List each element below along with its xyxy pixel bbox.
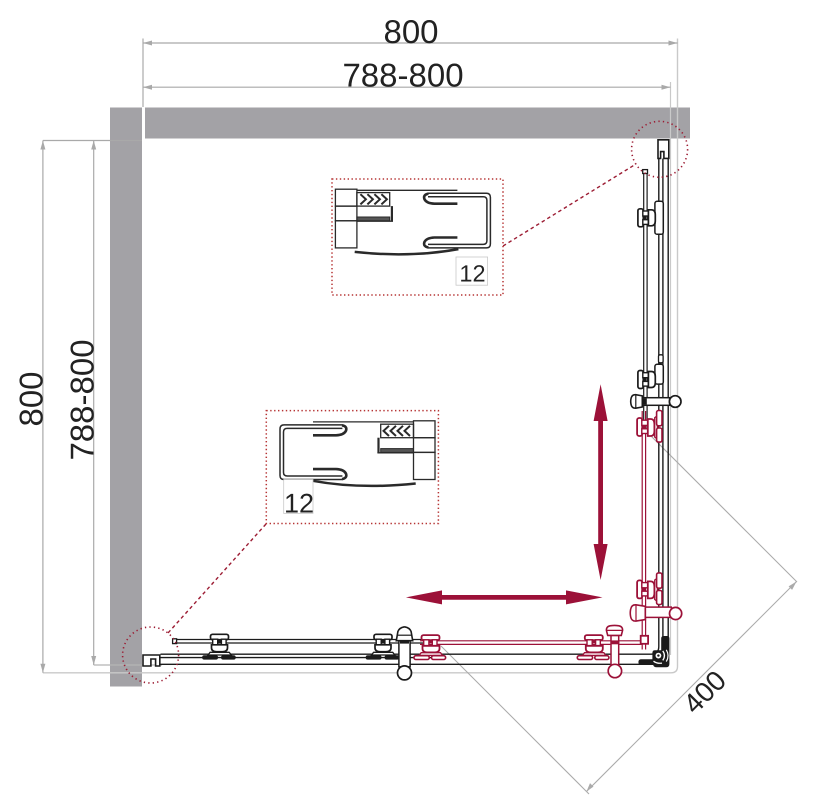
- svg-text:800: 800: [13, 371, 50, 426]
- svg-text:788-800: 788-800: [342, 57, 463, 94]
- svg-text:400: 400: [677, 665, 732, 720]
- svg-text:788-800: 788-800: [64, 339, 101, 460]
- svg-text:800: 800: [383, 13, 438, 50]
- svg-text:12: 12: [284, 489, 314, 519]
- svg-text:12: 12: [459, 261, 485, 287]
